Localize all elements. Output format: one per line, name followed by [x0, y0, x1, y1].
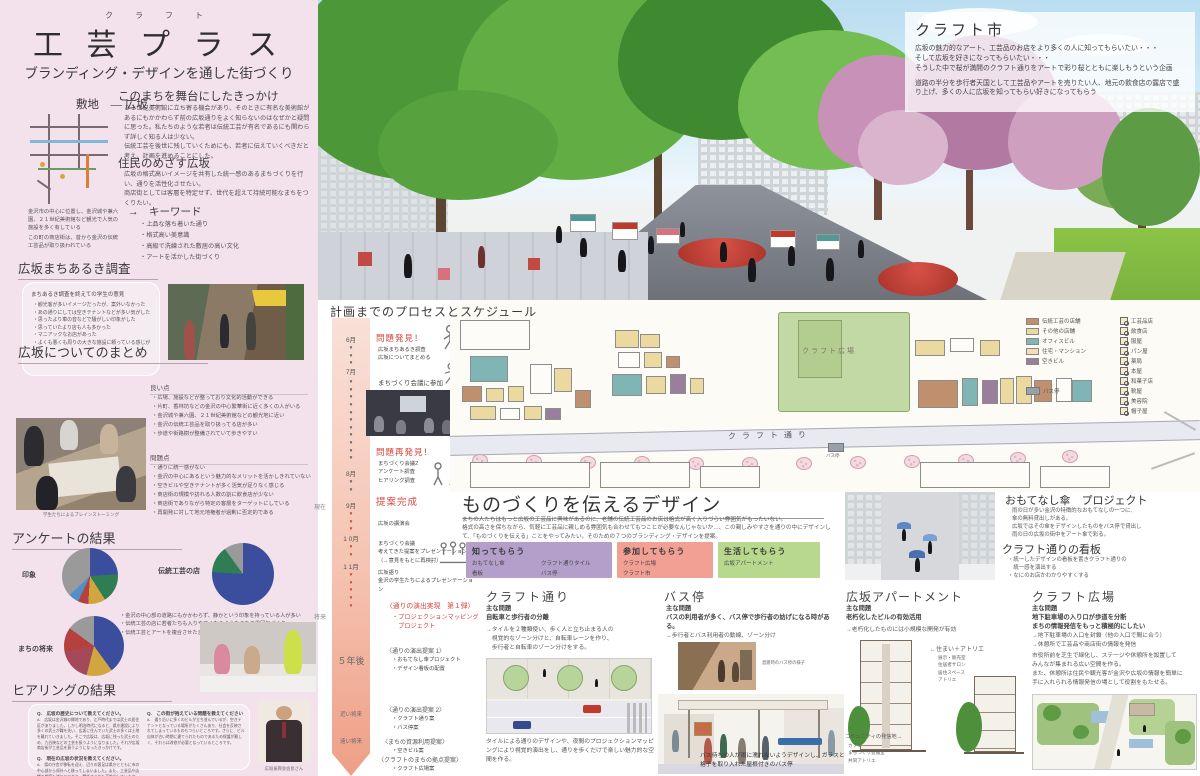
red-umbrella: [878, 262, 958, 296]
chairman-photo: [258, 700, 310, 762]
market-stall: [816, 234, 840, 250]
red-tile: [358, 252, 372, 266]
craft-plaza-problems: 地下駐車場の入り口が歩道を分断 まちの情報発信をもっと積極的にしたい: [1032, 613, 1200, 632]
meeting-photo: [366, 390, 458, 436]
timeline-arrows: ▼ ▼ ▼ ▼ ▼ ▼ ▼ ▼ ▼ ▼ ▼: [332, 378, 370, 462]
list-item: バス停: [541, 570, 606, 580]
design-box-know: 知ってもらう おもてなし傘クラフト通りタイル看板バス停: [466, 542, 612, 578]
craft-plaza-solutions: →地下駐車場の入口を封鎖（他の入口で間に合う） →休憩所で工芸品や商店街の情報を…: [1032, 632, 1200, 650]
street-tree: [557, 665, 583, 691]
label-5years: ５年後: [332, 654, 370, 667]
list-item: 思っていたより店も人も多かった: [33, 325, 155, 333]
process-heading: 計画までのプロセスとスケジュール: [330, 303, 580, 320]
list-item: 観光客が多いイメージだったが、案外いなかった: [33, 302, 155, 310]
craft-street-caption: タイルによる通りのデザインや、夜間のプロジェクションマッピングにより視覚的演出を…: [486, 738, 654, 765]
proposal4-item: ・クラフト広場案: [392, 765, 434, 773]
face-shape: [276, 706, 292, 720]
bus-shelter-shape: [740, 650, 752, 680]
poster: ク ラ フ ト 工 芸 プ ラ ス ブランディング・デザインを通した街づくり 敷…: [0, 0, 1200, 776]
list-item: あの通りにしては空きテナントなどが多い気がした: [33, 310, 155, 318]
icon-legend-label: 本屋: [1131, 367, 1142, 375]
map-color-legend: 伝統工芸の店舗 その他の店舗 オフィスビル 住宅・マンション 空きビル バス停: [1026, 316, 1086, 396]
wall-green: [286, 284, 304, 360]
hat-shop-icon: [1120, 407, 1128, 415]
icon-legend-label: 帽子屋: [1131, 407, 1148, 415]
pond: [1129, 739, 1153, 748]
cherry-canopy: [858, 110, 948, 185]
market-stall: [656, 228, 680, 244]
milestone-proposal-done: 提案完成: [376, 494, 418, 508]
craft-shop-icon: [1120, 317, 1128, 325]
design-box-join: 参加してもらう クラフト広場クラフト市: [617, 542, 713, 578]
list-item: 広坂アパートメント: [724, 560, 814, 570]
umbrella-shape: [909, 550, 925, 558]
list-item: 統一したデザインの看板を置きクラフト通りの 統一感を演出する: [1008, 556, 1198, 572]
summary-heading: 広坂についてのまとめ: [18, 342, 208, 364]
future-label: 将来: [314, 612, 326, 621]
problem-points-list: 通りに統一感がない金沢の中心にあるという魅力的なメリットを活かしきれていない空き…: [152, 464, 314, 518]
blue-car: [513, 721, 531, 729]
month-aug: 8月: [332, 468, 370, 478]
bubble-title: まちあるき調査を終えての学生の意見: [23, 283, 159, 298]
hearing-heading: ヒアリングの結果: [12, 680, 172, 702]
list-item: 片町、香林坊などの金沢の中心繁華街に近く多くの人がいる: [152, 403, 312, 412]
bus-stop-label: バス停: [826, 453, 840, 459]
icon-legend-label: 靴屋: [1131, 387, 1142, 395]
path: [1000, 252, 1126, 300]
design-body: まちの人たちはもっと広坂の工芸品に興味があるのに、老舗の伝統工芸品のお店は格式が…: [462, 516, 832, 541]
sakura-trunk: [966, 170, 973, 230]
craft-plaza-illustration: [1032, 694, 1197, 770]
office-building: [470, 356, 508, 382]
design-box-title: 生活してもらう: [724, 546, 814, 557]
list-item: 共同アトリエ: [848, 757, 885, 764]
realization-item: プロジェクト: [392, 621, 435, 630]
milestone-problem-found: 問題発見！: [376, 332, 424, 344]
list-item: 空きビルや空きテナントが多く活気が足りなく感じる: [152, 482, 314, 491]
site-map-sketch: [30, 114, 108, 204]
craft-street-label: クラフト通り: [728, 429, 812, 442]
proposal1-item: ・おもてなし傘プロジェクト: [392, 656, 461, 664]
hearing-q2: Q. 現在の広坂の状況を教えてください。: [37, 756, 141, 762]
bus-stop-problem: バスの利用者が多く、バス停で歩行者の妨げになる時がある。: [666, 613, 836, 632]
poster-subtitle: ブランディング・デザインを通した街づくり: [0, 62, 318, 82]
sidebar: ク ラ フ ト 工 芸 プ ラ ス ブランディング・デザインを通した街づくり 敷…: [0, 0, 318, 776]
craft-market-panel: クラフト市 広坂の魅力的なアート、工芸品のお店をより多くの人に知ってもらいたい・…: [905, 12, 1195, 112]
list-item: 居住スペース: [938, 669, 966, 676]
river-line: [30, 140, 108, 143]
list-item: 住居者サロン: [938, 661, 966, 668]
craft-plaza-label: クラフト広場: [802, 346, 856, 356]
list-item: まちづくり会議室: [848, 749, 885, 756]
poster-panel: [694, 722, 712, 736]
trigger-heading: このまちを舞台にしたきっかけ: [118, 88, 279, 104]
label-far-future: 遠い将来: [332, 737, 370, 745]
omotenashi-title: おもてなし傘 プロジェクト: [1005, 492, 1148, 508]
craft-plaza-title: クラフト広場: [1032, 588, 1116, 605]
proposal2-title: 〈通りの演出提案 2〉: [386, 705, 445, 714]
proposal1-item: ・デザイン看板の配置: [392, 665, 445, 673]
poster-title: 工 芸 プ ラ ス: [0, 20, 318, 64]
tie-shape: [282, 722, 286, 738]
red-tile: [528, 258, 540, 270]
apartment-annotation: ←住まい＋アトリエ: [930, 644, 984, 653]
list-item: 広坂についてまとめる: [378, 354, 431, 362]
street-tree: [503, 665, 529, 691]
apartment-community: コミュニティの発信地→: [845, 733, 902, 740]
list-item: 広坂まちあるき調査: [378, 346, 431, 354]
bus-stop-photo-caption: 混雑時のバス停の様子: [762, 660, 832, 666]
pharmacy-icon: [1120, 357, 1128, 365]
signboard-items: 統一したデザインの看板を置きクラフト通りの 統一感を演出するなにのお店かわかりや…: [1008, 556, 1198, 580]
design-box-live: 生活してもらう 広坂アパートメント: [718, 542, 820, 578]
milestone-items: 広坂語り金沢の学生たちによるプレゼンテーション: [378, 569, 478, 594]
timeline-arrows: ▼ ▼ ▼: [332, 344, 370, 367]
survey-heading: アンケートの結果: [12, 528, 182, 550]
tree-canopy: [1102, 108, 1200, 226]
bench-shape: [778, 738, 822, 745]
list-item: 展示・販売室: [938, 654, 966, 661]
apartment-solution: →老朽化したものには小規模な開発が有効: [846, 626, 996, 635]
table-shape: [200, 676, 316, 692]
umbrella-shape: [897, 522, 911, 529]
machiaruki-heading: 広坂まちあるき調査: [18, 258, 158, 280]
hearing-a1: A. 広坂は金沢城の縁地であり、江戸時代までは武士の居住区がありました。しかし明…: [37, 718, 141, 752]
list-item: クラフト市: [623, 570, 707, 580]
list-item: 高級で洗練された敷居の高い文化: [140, 242, 310, 253]
design-box-title: 知ってもらう: [472, 546, 606, 557]
now-label: 現在: [314, 502, 326, 511]
bus-stop-marker: [828, 443, 844, 452]
icon-legend-label: パン屋: [1131, 347, 1148, 355]
legend-label: 住宅・マンション: [1042, 347, 1086, 355]
list-item: 商店街の規模や訪れる人数の割に飲食店が少ない: [152, 491, 314, 500]
clothes-shop-icon: [1120, 337, 1128, 345]
chairman-caption: 広坂振興会会長さん: [252, 766, 316, 772]
pie-craft-shops: [212, 543, 274, 605]
month-jul: 7月: [332, 366, 370, 376]
list-item: 金沢城や兼六園、２１世紀美術館などの観光地に近い: [152, 412, 312, 421]
umbrella-street-illustration: [845, 492, 995, 580]
timeline-arrows: ▼ ▼ ▼: [332, 510, 370, 533]
hearing-qa-box: Q. 広坂の歴史について教えてください。 A. 広坂は金沢城の縁地であり、江戸時…: [28, 704, 250, 770]
pie-future: [64, 616, 124, 676]
legend-label: 伝統工芸の店舗: [1042, 317, 1081, 325]
legend-swatch-empty: [1026, 358, 1039, 365]
month-sep: 9月: [332, 500, 370, 510]
hearing-q1: Q. 広坂の歴史について教えてください。: [37, 711, 141, 717]
list-item: なにのお店かわかりやすくする: [1008, 572, 1198, 580]
ground-line: [964, 752, 1024, 754]
list-item: まちづくり会議2: [378, 460, 418, 468]
timeline-arrows: ▼ ▼ ▼ ▼ ▼: [332, 571, 370, 609]
omotenashi-body: 雨の日が多い金沢の特徴的なおもてなしの一つに、 傘の無料貸出しがある。 広坂では…: [1012, 507, 1197, 539]
canopy-roof: [678, 700, 828, 710]
restaurant-icon: [1120, 327, 1128, 335]
list-item: マニアックなお店があった: [33, 332, 155, 340]
keywords-list: 上品な落ち着いた通り格式高い美意識高級で洗練された敷居の高い文化アートを活かした…: [140, 220, 310, 263]
pie2-label: 伝統工芸の店: [158, 566, 200, 576]
list-item: 広坂語り: [378, 569, 478, 577]
brainstorming-caption: 学生たちによるブレインストーミング: [16, 512, 146, 518]
list-item: 格式高い美意識: [140, 231, 310, 242]
street-illustration: クラフト市 広坂の魅力的なアート、工芸品のお店をより多くの人に知ってもらいたい・…: [318, 0, 1200, 300]
timeline-arrows: ▼ ▼: [332, 478, 370, 493]
trigger-body: ２１世紀美術館に立ち寄る機会があり、そのときに有名な美術館があるにもかかわらず前…: [124, 104, 314, 162]
hearing-a2: A. 県の庁舎が移転を迎え、辺りの客足は県庁とともに市の中心部から郊外へと移って…: [37, 763, 141, 776]
milestone-lecture: 広坂の講演会: [378, 520, 410, 528]
list-item: 通りに統一感がない: [152, 464, 314, 473]
craft-street-band: [450, 420, 1200, 456]
site-plan: クラフト通り クラフト広場: [450, 300, 1200, 492]
map-icon-legend: 工芸品店 飲食店 服屋 パン屋 薬局 本屋 和菓子店 靴屋 美容院 帽子屋: [1120, 316, 1153, 416]
legend-label: 空きビル: [1042, 357, 1064, 365]
residents-body: 広坂の格式高いイメージを共有した統一感のあるまちづくりを行い、通りを活性化させた…: [124, 170, 314, 208]
list-item: おもてなし傘: [472, 560, 537, 570]
list-item: 金沢の中心にあるという魅力的なメリットを活かしきれていない: [152, 473, 314, 482]
icon-legend-label: 薬局: [1131, 357, 1142, 365]
apartment-community-items: カフェまちづくり会議室共同アトリエ: [848, 742, 885, 764]
bus-stop-solution: →歩行者とバス利用者の動線、ゾーン分け: [666, 632, 836, 641]
bakery-icon: [1120, 347, 1128, 355]
craft-street-plan-illustration: [486, 658, 652, 734]
craft-market-para2: 道路の半分を歩行者天国として工芸品やアートを売りたい人、地元の飲食店の露店で盛り…: [915, 79, 1185, 99]
list-item: ヒアリング調査: [378, 477, 418, 485]
proposal3-title: 〈まちの資源利用提案〉: [382, 737, 448, 746]
workshop-photo: [200, 622, 316, 692]
list-item: 金沢の学生たちによるプレゼンテーション: [378, 577, 478, 594]
realization-item: ・プロジェクションマッピング: [392, 612, 479, 621]
hearing-q3: Q. この街が抱えている問題を教えてください: [147, 711, 245, 717]
apartment-title: 広坂アパートメント: [846, 588, 963, 605]
design-box-items: クラフト広場クラフト市: [623, 560, 707, 580]
month-jun: 6月: [332, 334, 370, 344]
book-shop-icon: [1120, 367, 1128, 375]
craft-street-title: クラフト通り: [486, 588, 570, 605]
pie-impression: [62, 548, 118, 604]
umbrella-shape: [923, 534, 937, 541]
legend-swatch-house: [1026, 348, 1039, 355]
projector-screen: [400, 396, 426, 412]
site-caption-1: 金沢市の中心に位置し、金沢城や兼六園、２１世紀美術館など観光で人気の施設を多く有…: [28, 208, 123, 233]
label-near-future: 近い将来: [332, 710, 370, 718]
legend-swatch-office: [1026, 338, 1039, 345]
craft-shop-building: [462, 386, 482, 402]
month-nov: 1 1月: [332, 561, 370, 571]
list-item: 金沢の中心部の道路にもかかわらず、静かという印象を持っている人が多い: [120, 612, 316, 620]
design-heading: ものづくりを伝えるデザイン: [462, 490, 824, 519]
craft-market-para1: 広坂の魅力的なアート、工芸品のお店をより多くの人に知ってもらいたい・・・ そして…: [915, 44, 1185, 74]
icon-legend-label: 飲食店: [1131, 327, 1148, 335]
hirosaka-street-mark: [86, 154, 89, 188]
icon-legend-label: 服屋: [1131, 337, 1142, 345]
crosswalk: [627, 703, 647, 733]
legend-swatch-other: [1026, 328, 1039, 335]
pie1-label: 印象: [22, 570, 36, 580]
milestone-items: 広坂まちあるき調査広坂についてまとめる: [378, 346, 431, 363]
list-item: 歩道や街路樹が整備されていて歩きやすい: [152, 430, 312, 439]
signboard-title: クラフト通りの看板: [1002, 541, 1101, 557]
shoe-shop-icon: [1120, 387, 1128, 395]
list-item: 商店街でありながら特定の客層をターゲットにしている: [152, 500, 314, 509]
list-item: 再開発に対して地元地権者が過剰に否定的である: [152, 509, 314, 518]
icon-legend-label: 和菓子店: [1131, 377, 1153, 385]
proposal4-title: 〈クラフトのまちの拠点提案〉: [378, 755, 462, 764]
list-item: アンケート調査: [378, 468, 418, 476]
milestone-items: まちづくり会議2アンケート調査ヒアリング調査: [378, 460, 418, 485]
list-item: アートを活かした街づくり: [140, 253, 310, 264]
icon-legend-label: 工芸品店: [1131, 317, 1153, 325]
bus-stop-title: バス停: [664, 588, 706, 605]
red-car: [583, 705, 601, 713]
list-item: クラフト通りタイル: [541, 560, 606, 570]
realization-title: 〈通りの演出実現 第１弾〉: [386, 600, 474, 610]
design-box-items: 広坂アパートメント: [724, 560, 814, 570]
market-stall: [570, 214, 596, 232]
bus-stop-caption: バス待ちの人が雨に濡れないようデザインし、ガラスと格子を取り入れた屋根付きのバス…: [700, 752, 850, 770]
list-item: カフェ: [848, 742, 885, 749]
milestone-problem-refound: 問題再発見！: [376, 446, 433, 458]
tree-trunk: [654, 150, 662, 222]
list-item: 金沢の伝統工芸品を取り扱ってる店が多い: [152, 421, 312, 430]
legend-bus-stop-label: バス停: [1043, 387, 1060, 395]
bus-stop-photo: [678, 642, 756, 690]
craft-plaza-body: 市役所前を芝生で緑化し、ステージや休憩所を設置して みんなが集まれる広い空間を作…: [1032, 652, 1200, 688]
craft-street-problem: 自転車と歩行者の分離: [486, 613, 549, 622]
proposal2-item: ・クラフト通り案: [392, 715, 434, 723]
beauty-salon-icon: [1120, 397, 1128, 405]
craft-market-title: クラフト市: [915, 19, 1185, 40]
legend-label: オフィスビル: [1042, 337, 1075, 345]
design-box-items: おもてなし傘クラフト通りタイル看板バス停: [472, 560, 606, 580]
residents-heading: 住民のめざす広坂: [118, 155, 210, 171]
list-item: 思ったより車の音などで騒がしい印象がした: [33, 317, 155, 325]
list-item: アトリエ: [938, 676, 966, 683]
legend-bus-stop-marker: [1026, 387, 1040, 395]
list-item: 看板: [472, 570, 537, 580]
hearing-a3: A. 通り沿いに多くのビルが立ち並んでいるが、空きテナントとなっている場所がたく…: [147, 718, 245, 746]
paper-shape: [48, 456, 121, 497]
brainstorming-photo: [16, 418, 146, 510]
timeline-arrows: ▼ ▼: [332, 543, 370, 558]
legend-swatch-craft: [1026, 318, 1039, 325]
pink-tile: [438, 268, 450, 280]
tree-canopy: [378, 90, 558, 200]
street-tree: [611, 665, 637, 691]
empty-building: [545, 408, 561, 420]
list-item: クラフト広場: [623, 560, 707, 570]
list-item: 上品な落ち着いた通り: [140, 220, 310, 231]
craft-shop-building: [918, 380, 958, 408]
proposal1-title: 〈通りの演出提案 1〉: [386, 646, 445, 655]
stage-shape: [1129, 703, 1155, 716]
keywords-heading: → キーワード: [128, 204, 202, 219]
design-box-title: 参加してもらう: [623, 546, 707, 557]
icon-legend-label: 美容院: [1131, 397, 1148, 405]
apartment-section-illustration-2: [964, 676, 1024, 774]
legend-label: その他の店舗: [1042, 327, 1075, 335]
site-caption-2: この町の商店街は、昔から金沢の伝統工芸品が取り扱われている: [28, 234, 123, 250]
proposal2-item: ・バス停案: [392, 724, 419, 732]
pie3-label: まちの将来: [18, 644, 53, 654]
wagashi-shop-icon: [1120, 377, 1128, 385]
market-stall: [612, 222, 638, 240]
month-oct: 1 0月: [332, 533, 370, 543]
good-points-list: 広場、施設などが整っており文化的活動ができる片町、香林坊などの金沢の中心繁華街に…: [152, 394, 312, 439]
apartment-annotation-items: 展示・販売室住居者サロン居住スペースアトリエ: [938, 654, 966, 683]
list-item: 広場、施設などが整っており文化的活動ができる: [152, 394, 312, 403]
craft-street-solution: →タイルを２種類使い、歩く人と立ち止まる人の 視覚的なゾーン分けと、自転車レーン…: [486, 626, 658, 653]
apartment-problem: 老朽化したビルの有効活用: [846, 613, 922, 622]
